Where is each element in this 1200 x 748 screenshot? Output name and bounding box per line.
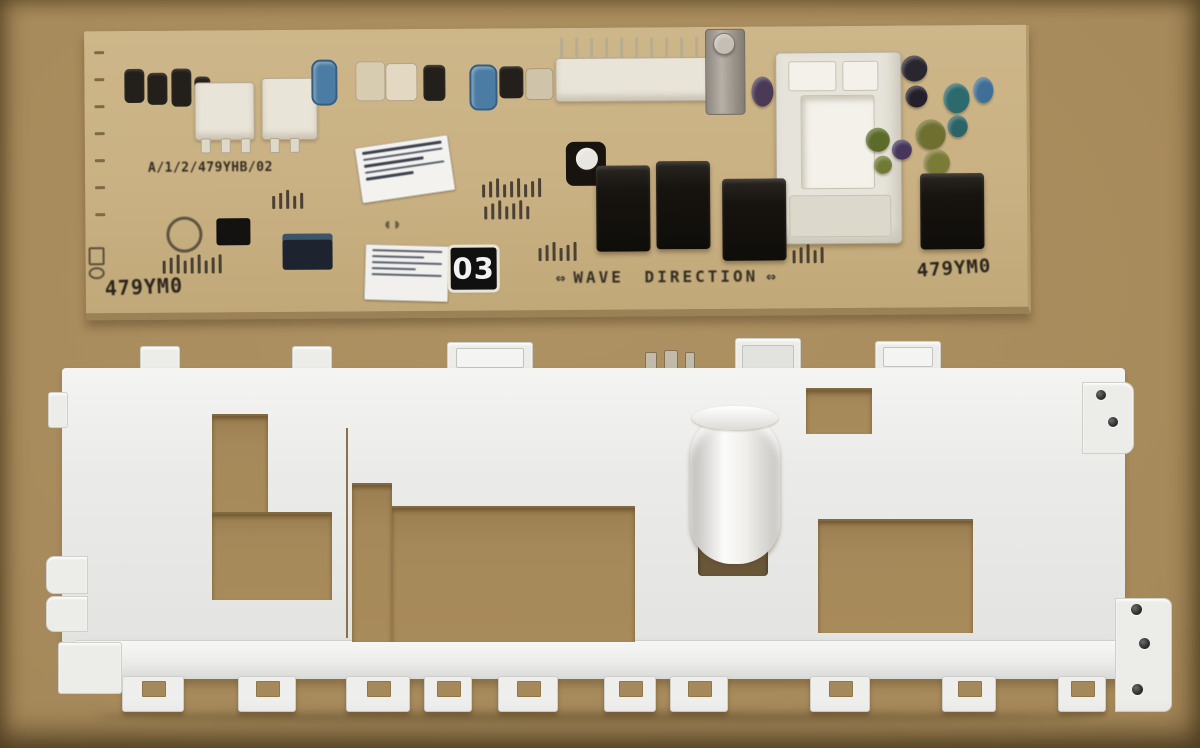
- bracket-foot-notch: [1071, 681, 1095, 697]
- bracket-foot: [1058, 676, 1106, 712]
- bracket-foot-notch: [829, 681, 853, 697]
- bracket-foot-notch: [619, 681, 643, 697]
- bracket-cutout-right: [818, 519, 973, 633]
- bracket-foot: [122, 676, 184, 712]
- bracket-seam: [346, 428, 348, 638]
- bracket-cutout-L-lower: [212, 512, 332, 600]
- bracket-left-knob: [46, 596, 88, 632]
- bracket-foot: [346, 676, 410, 712]
- bracket-cylinder-cap: [692, 406, 778, 430]
- screw-hole: [1108, 417, 1118, 427]
- bracket-foot: [670, 676, 728, 712]
- bracket-cutout-L-upper: [212, 414, 268, 515]
- bracket-foot-notch: [688, 681, 712, 697]
- bracket-foot-notch: [367, 681, 391, 697]
- bracket-left-knob: [46, 556, 88, 594]
- bracket-tab-inner: [456, 348, 524, 368]
- bracket-cylinder: [690, 414, 780, 564]
- bracket-tab-inner: [883, 347, 933, 367]
- screw-hole: [1096, 390, 1106, 400]
- bracket-screw-tab-bottom-right: [1115, 598, 1172, 712]
- bracket-cutout-top: [806, 388, 872, 434]
- mounting-bracket-layer: [0, 0, 1200, 748]
- bracket-cutout-middle-notch: [352, 483, 392, 642]
- bracket-foot-notch: [142, 681, 166, 697]
- bracket-foot-notch: [256, 681, 280, 697]
- bracket-foot: [810, 676, 870, 712]
- bracket-shadow: [95, 712, 1095, 722]
- screw-hole: [1131, 604, 1142, 615]
- photo-scene: ◖◗ 03 A/1/2/479YHB/02 479YM0 479YM0: [0, 0, 1200, 748]
- bracket-foot: [498, 676, 558, 712]
- bracket-foot: [604, 676, 656, 712]
- bracket-left-tab: [48, 392, 68, 428]
- screw-hole: [1139, 638, 1150, 649]
- bracket-foot-notch: [958, 681, 982, 697]
- bracket-cutout-middle: [392, 506, 635, 642]
- bracket-foot: [424, 676, 472, 712]
- bracket-foot-left: [58, 642, 122, 694]
- bracket-lower-rail: [75, 640, 1118, 679]
- bracket-foot: [238, 676, 296, 712]
- bracket-foot-notch: [437, 681, 461, 697]
- screw-hole: [1132, 684, 1143, 695]
- bracket-foot-notch: [517, 681, 541, 697]
- bracket-foot: [942, 676, 996, 712]
